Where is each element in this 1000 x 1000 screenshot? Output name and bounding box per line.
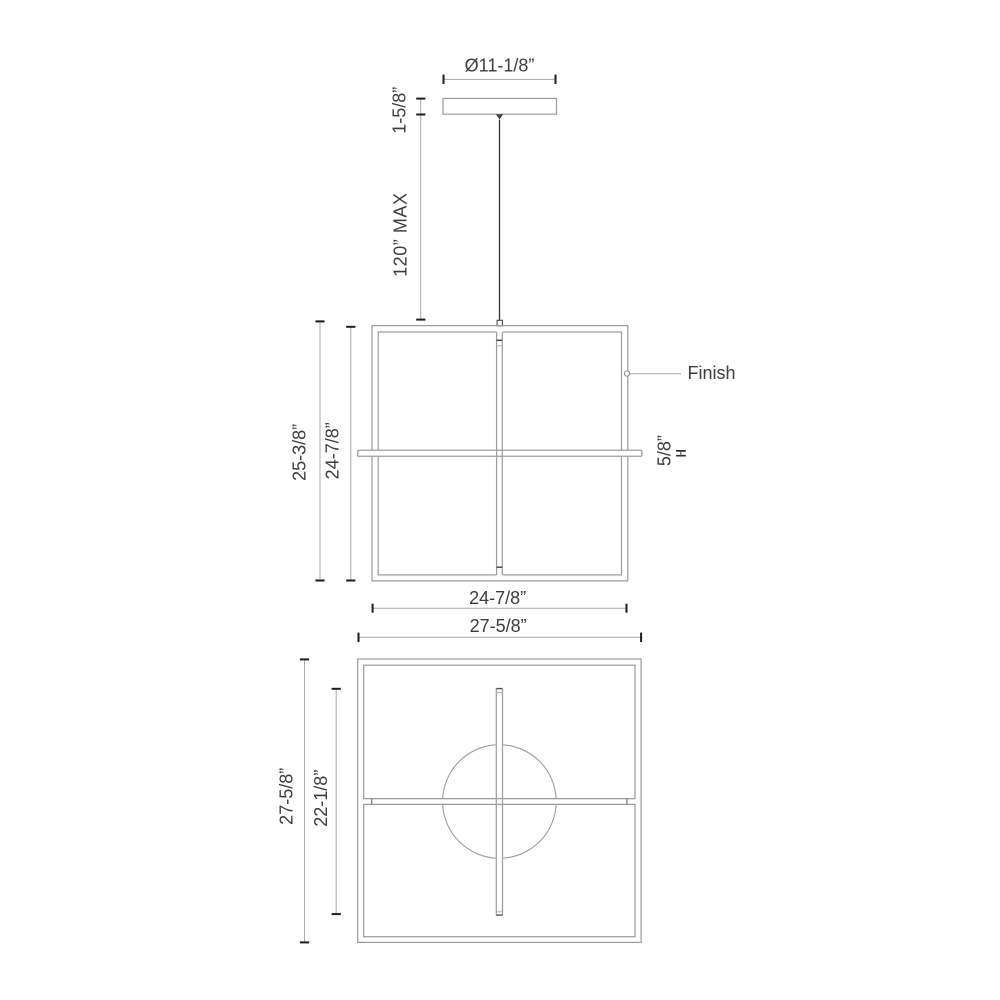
svg-text:Ø11-1/8”: Ø11-1/8”	[465, 56, 535, 76]
svg-text:27-5/8”: 27-5/8”	[470, 616, 527, 636]
svg-text:5/8”: 5/8”	[654, 435, 674, 466]
svg-text:24-7/8”: 24-7/8”	[323, 422, 343, 479]
svg-text:22-1/8”: 22-1/8”	[311, 770, 331, 827]
svg-text:27-5/8”: 27-5/8”	[277, 768, 297, 825]
svg-text:25-3/8”: 25-3/8”	[290, 424, 310, 481]
svg-text:Finish: Finish	[688, 363, 736, 383]
svg-text:1-5/8”: 1-5/8”	[389, 87, 409, 134]
svg-text:120” MAX: 120” MAX	[390, 192, 410, 276]
svg-text:24-7/8”: 24-7/8”	[469, 588, 526, 608]
